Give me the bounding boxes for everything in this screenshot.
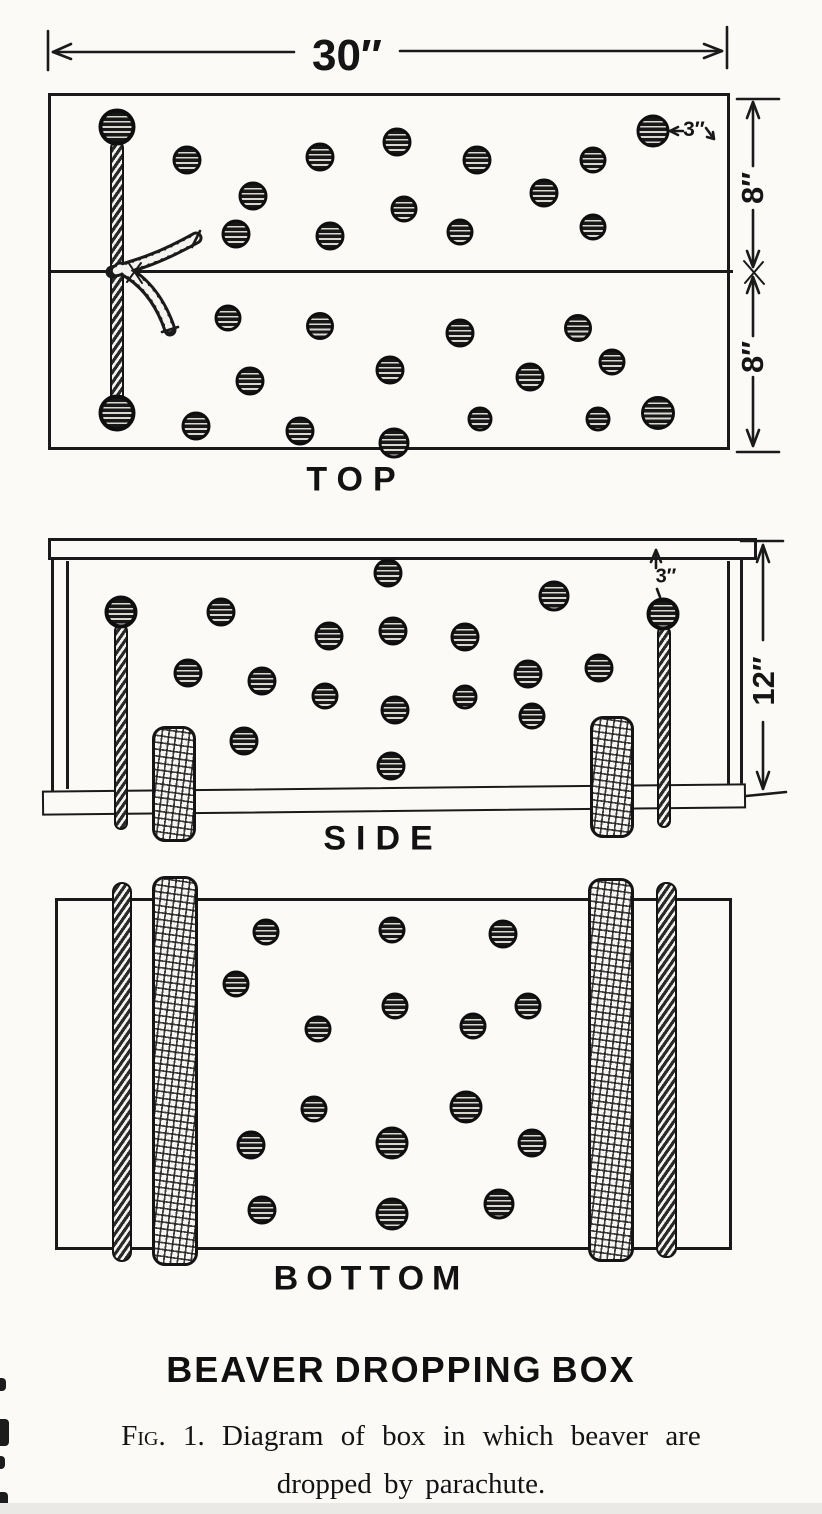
air-hole — [236, 367, 265, 396]
air-hole — [230, 727, 259, 756]
air-hole — [376, 356, 405, 385]
scan-artifact — [0, 1419, 9, 1446]
air-hole — [453, 685, 478, 710]
air-hole — [446, 319, 475, 348]
air-hole — [286, 417, 315, 446]
air-hole — [599, 349, 626, 376]
figure-caption-line1: Fig. 1. Diagram of box in which beaver a… — [0, 1420, 822, 1453]
air-hole — [564, 314, 592, 342]
air-hole — [306, 312, 334, 340]
dim-3-side-label: 3″ — [656, 566, 677, 589]
dim-3-top-label: 3″ — [683, 118, 705, 142]
air-hole — [460, 1013, 487, 1040]
air-hole — [383, 128, 412, 157]
air-hole — [382, 993, 409, 1020]
rope-hole — [105, 596, 138, 629]
scan-edge-band — [0, 1503, 822, 1514]
air-hole — [530, 179, 559, 208]
air-hole — [239, 182, 268, 211]
air-hole — [223, 971, 250, 998]
air-hole — [641, 396, 675, 430]
air-hole — [450, 1091, 483, 1124]
air-hole — [391, 196, 418, 223]
air-hole — [637, 115, 670, 148]
caption-text: Diagram of box in which beaver are — [222, 1420, 701, 1452]
air-hole — [519, 703, 546, 730]
air-hole — [489, 920, 518, 949]
figure-sheet: 30″ 8″ 8″ 3″ 12″ 3″ TOP SIDE BOTTOM BEAV… — [0, 0, 822, 1514]
air-hole — [253, 919, 280, 946]
air-hole — [539, 581, 570, 612]
air-hole — [451, 623, 480, 652]
air-hole — [580, 147, 607, 174]
air-hole — [248, 1196, 277, 1225]
air-hole — [174, 659, 203, 688]
air-hole — [484, 1189, 515, 1220]
rope-hole — [99, 395, 136, 432]
dim-30-inch-line — [48, 27, 727, 70]
side-view-inner-wall-left — [66, 561, 69, 789]
air-hole — [514, 660, 543, 689]
air-hole — [447, 219, 474, 246]
air-hole — [376, 1127, 409, 1160]
air-hole — [222, 220, 251, 249]
bottom-webbing-left — [152, 876, 198, 1266]
bottom-view-label: BOTTOM — [274, 1260, 469, 1299]
bottom-webbing-right — [588, 878, 634, 1262]
air-hole — [379, 428, 410, 459]
air-hole — [463, 146, 492, 175]
air-hole — [248, 667, 277, 696]
air-hole — [516, 363, 545, 392]
air-hole — [580, 214, 607, 241]
rope-hole — [99, 109, 136, 146]
dim-30-inch-label: 30″ — [312, 31, 382, 81]
air-hole — [515, 993, 542, 1020]
dim-12-inch-label: 12″ — [746, 656, 782, 705]
scan-artifact — [0, 1378, 6, 1391]
air-hole — [306, 143, 335, 172]
scan-artifact — [0, 1456, 5, 1469]
top-view-label: TOP — [306, 461, 405, 500]
dim-8-lower-label: 8″ — [735, 341, 771, 373]
air-hole — [301, 1096, 328, 1123]
air-hole — [381, 696, 410, 725]
bottom-rope-right — [656, 882, 677, 1258]
air-hole — [215, 305, 242, 332]
figure-number: Fig. 1. — [121, 1420, 204, 1452]
top-view-midline — [48, 270, 733, 273]
air-hole — [585, 654, 614, 683]
air-hole — [315, 622, 344, 651]
rope-hole — [647, 598, 680, 631]
air-hole — [312, 683, 339, 710]
figure-caption-line2: dropped by parachute. — [0, 1468, 822, 1501]
air-hole — [182, 412, 211, 441]
side-view-inner-wall-right — [727, 561, 730, 787]
air-hole — [379, 917, 406, 944]
air-hole — [379, 617, 408, 646]
figure-title: BEAVER DROPPING BOX — [166, 1349, 635, 1391]
air-hole — [173, 146, 202, 175]
dim-8-upper-label: 8″ — [735, 172, 771, 204]
suspension-rope-right — [657, 626, 671, 828]
air-hole — [468, 407, 493, 432]
air-hole — [305, 1016, 332, 1043]
air-hole — [376, 1198, 409, 1231]
webbing-strap-side-right — [590, 716, 634, 838]
air-hole — [316, 222, 345, 251]
air-hole — [237, 1131, 266, 1160]
suspension-rope-left — [114, 624, 128, 830]
lashing-rope — [110, 141, 124, 403]
air-hole — [374, 559, 403, 588]
air-hole — [518, 1129, 547, 1158]
air-hole — [377, 752, 406, 781]
bottom-rope-left — [112, 882, 132, 1262]
air-hole — [207, 598, 236, 627]
webbing-strap-side-left — [152, 726, 196, 842]
air-hole — [586, 407, 611, 432]
side-view-label: SIDE — [323, 820, 442, 859]
